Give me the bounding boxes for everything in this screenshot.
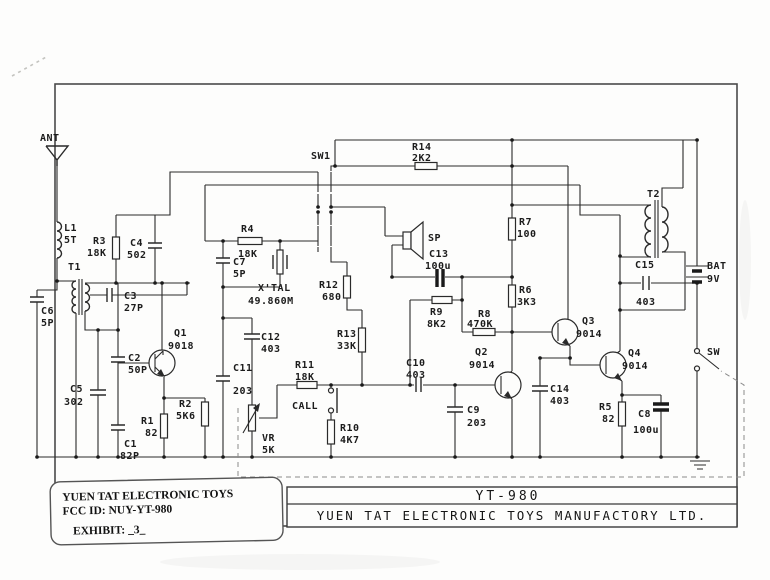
scanned-schematic-page: ANT L1 5T T1 R3 18K C4 502 C3 27P C6 5P … [0,0,770,580]
c15-capacitor [643,276,649,290]
label-sp: SP [428,233,441,244]
label-r5-ref: R5 [599,402,612,413]
bat-battery [686,266,708,282]
r5-resistor [619,402,626,426]
label-c3-ref: C3 [124,291,137,302]
label-r5-value: 82 [602,414,615,425]
drawing-border [55,84,737,526]
label-r4-ref: R4 [241,224,254,235]
label-c4-ref: C4 [130,238,143,249]
label-t1-ref: T1 [68,262,81,273]
label-r7-ref: R7 [519,217,532,228]
c14-capacitor [532,386,548,391]
r1-resistor [161,414,168,438]
label-c12-value: 403 [261,344,281,355]
label-r11-ref: R11 [295,360,315,371]
label-c9-ref: C9 [467,405,480,416]
label-r10-value: 4K7 [340,435,360,446]
label-vr-value: 5K [262,445,275,456]
pencil-mark [12,56,48,76]
xtal-crystal [273,250,287,274]
label-r12-ref: R12 [319,280,339,291]
label-c1-value: 82P [120,451,140,462]
label-c11-value: 203 [233,386,253,397]
label-r13-ref: R13 [337,329,357,340]
label-c8-value: 100u [633,425,659,436]
label-c12-ref: C12 [261,332,281,343]
label-xtal-value: 49.860M [248,296,294,307]
c9-capacitor [447,407,463,412]
label-r6-value: 3K3 [517,297,537,308]
label-r3-value: 18K [87,248,107,259]
smudge [739,200,751,320]
label-r7-value: 100 [517,229,537,240]
label-l1-ref: L1 [64,223,77,234]
label-r13-value: 33K [337,341,357,352]
label-c2-ref: C2 [128,353,141,364]
label-r1-ref: R1 [141,416,154,427]
label-c10-value: 403 [406,370,426,381]
c4-capacitor [148,243,162,248]
label-c11-ref: C11 [233,363,253,374]
c6-capacitor [30,297,44,302]
schematic-drawing: ANT L1 5T T1 R3 18K C4 502 C3 27P C6 5P … [0,0,770,580]
sw1-switch[interactable] [318,172,331,246]
label-c5-value: 302 [64,397,84,408]
label-r14-ref: R14 [412,142,432,153]
fcc-exhibit-label: YUEN TAT ELECTRONIC TOYS FCC ID: NUY-YT-… [50,477,283,545]
r4-resistor [238,238,262,245]
c12-capacitor [244,334,260,339]
r6-resistor [509,285,516,307]
label-c15-value: 403 [636,297,656,308]
label-c5-ref: C5 [70,384,83,395]
label-c10-ref: C10 [406,358,426,369]
c11-capacitor [216,376,230,381]
label-c7-value: 5P [233,269,246,280]
label-q1-ref: Q1 [174,328,187,339]
label-r9-value: 8K2 [427,319,447,330]
company-name: YUEN TAT ELECTRONIC TOYS MANUFACTORY LTD… [317,508,708,523]
label-c1-ref: C1 [124,439,137,450]
label-c6-ref: C6 [41,306,54,317]
ant-antenna-symbol [46,146,68,166]
r10-resistor [328,420,335,444]
fcc-id-line: FCC ID: NUY-YT-980 [62,503,172,517]
label-r4-value: 18K [238,249,258,260]
label-t2-ref: T2 [647,189,660,200]
label-c15-ref: C15 [635,260,655,271]
fcc-exhibit-line: EXHIBIT: _3_ [73,524,146,538]
label-r14-value: 2K2 [412,153,432,164]
label-c2-value: 50P [128,365,148,376]
label-q2-ref: Q2 [475,347,488,358]
label-r9-ref: R9 [430,307,443,318]
label-c13-ref: C13 [429,249,449,260]
t2-transformer [645,200,668,258]
label-r6-ref: R6 [519,285,532,296]
label-r10-ref: R10 [340,423,360,434]
label-c3-value: 27P [124,303,144,314]
c8-capacitor [653,404,669,410]
r12-resistor [344,276,351,298]
label-c8-ref: C8 [638,409,651,420]
label-c4-value: 502 [127,250,147,261]
c5-capacitor [90,390,106,395]
label-call: CALL [292,401,318,412]
label-c9-value: 203 [467,418,487,429]
label-vr-ref: VR [262,433,276,444]
label-c13-value: 100u [425,261,451,272]
label-l1-value: 5T [64,235,77,246]
label-c14-value: 403 [550,396,570,407]
label-r2-ref: R2 [179,399,192,410]
label-c6-value: 5P [41,318,54,329]
vr-potentiometer[interactable] [243,403,260,433]
r3-resistor [113,237,120,259]
call-button[interactable] [329,388,338,413]
c7-capacitor [216,258,230,263]
label-r11-value: 18K [295,372,315,383]
r2-resistor [202,402,209,426]
smudge [160,554,440,570]
label-xtal-ref: X'TAL [258,283,291,294]
label-q1-value: 9018 [168,341,194,352]
q1-transistor [149,350,175,377]
q3-transistor [552,319,578,346]
t1-transformer [72,279,90,315]
label-bat-value: 9V [707,274,720,285]
label-sw: SW [707,347,721,358]
model-number: YT-980 [476,489,541,504]
r7-resistor [509,218,516,240]
label-sw1: SW1 [311,151,331,162]
label-r12-value: 680 [322,292,342,303]
r13-resistor [359,328,366,352]
label-q4-value: 9014 [622,361,648,372]
label-q3-ref: Q3 [582,316,595,327]
label-r3-ref: R3 [93,236,106,247]
c1-capacitor [111,425,125,430]
label-bat-ref: BAT [707,261,727,272]
title-block: YT-980 YUEN TAT ELECTRONIC TOYS MANUFACT… [287,487,737,527]
sp-speaker [403,222,423,259]
label-ant: ANT [40,133,60,144]
sw-power-switch[interactable] [695,349,700,372]
l1-inductor [57,222,62,258]
label-r1-value: 82 [145,428,158,439]
q2-transistor [495,372,521,399]
label-q4-ref: Q4 [628,348,641,359]
label-r2-value: 5K6 [176,411,196,422]
c2-capacitor [111,357,125,362]
label-q2-value: 9014 [469,360,495,371]
c3-capacitor [107,288,112,302]
label-q3-value: 9014 [576,329,602,340]
label-r8-value: 470K [467,319,493,330]
label-c14-ref: C14 [550,384,570,395]
r9-resistor [432,297,452,304]
